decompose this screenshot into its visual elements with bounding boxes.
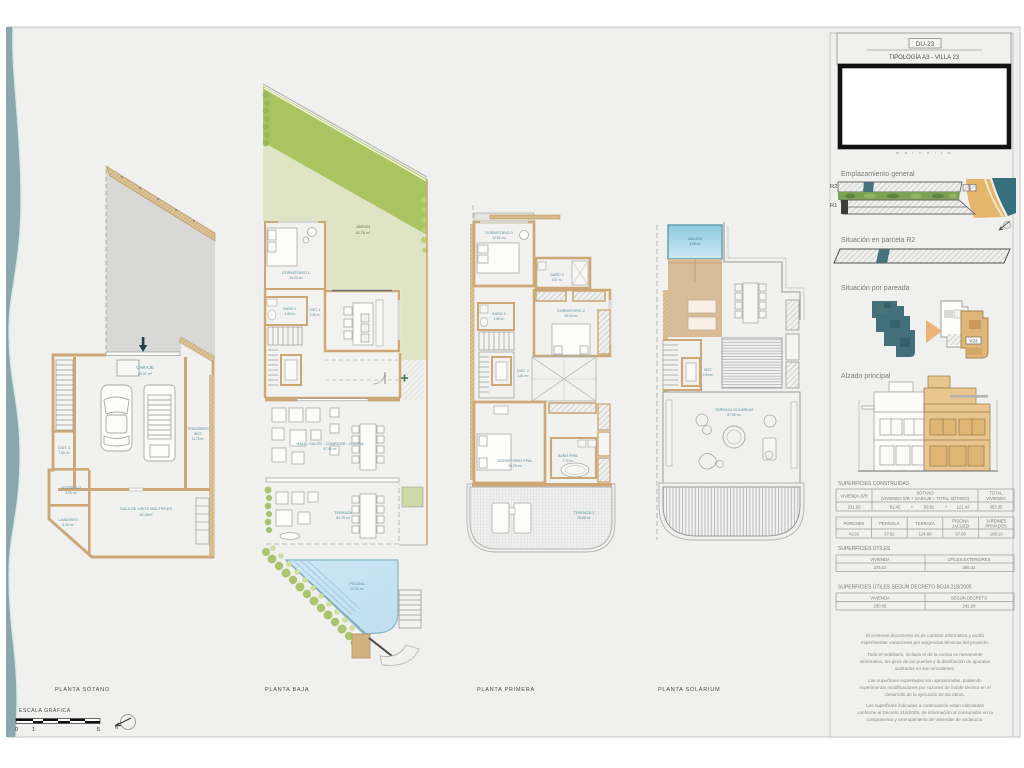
svg-text:20.05 m²: 20.05 m² bbox=[508, 464, 522, 468]
svg-text:PORCHES: PORCHES bbox=[843, 521, 864, 526]
svg-text:62.76 m²: 62.76 m² bbox=[356, 231, 371, 235]
svg-text:Alzado principal: Alzado principal bbox=[841, 373, 891, 380]
svg-text:20.30 m²: 20.30 m² bbox=[350, 587, 364, 591]
svg-text:Todo el mobiliario, incluido e: Todo el mobiliario, incluido el de la co… bbox=[867, 652, 983, 657]
svg-text:DORMITORIO PPAL: DORMITORIO PPAL bbox=[497, 459, 532, 463]
svg-text:GARAJE: GARAJE bbox=[136, 365, 154, 370]
svg-text:28.16m²: 28.16m² bbox=[139, 513, 153, 517]
svg-text:VESTÍBULO: VESTÍBULO bbox=[61, 486, 81, 490]
svg-text:informativo, los giros de las: informativo, los giros de las puertas y … bbox=[860, 659, 991, 664]
svg-text:121.42: 121.42 bbox=[957, 505, 970, 510]
svg-text:PLANTA PRIMERA: PLANTA PRIMERA bbox=[477, 687, 535, 693]
svg-text:ÚTILES EXTERIORES: ÚTILES EXTERIORES bbox=[948, 557, 991, 562]
svg-text:DORMITORIO 1: DORMITORIO 1 bbox=[282, 271, 310, 275]
svg-text:57.08: 57.08 bbox=[955, 531, 966, 536]
svg-text:conforme al Decreto 218/2005,: conforme al Decreto 218/2005, de informa… bbox=[857, 710, 993, 715]
svg-text:40.01 m²: 40.01 m² bbox=[138, 372, 153, 376]
svg-text:2.50 m²: 2.50 m² bbox=[703, 373, 714, 377]
svg-text:experimentar modificaciones po: experimentar modificaciones por razones … bbox=[859, 685, 990, 690]
svg-text:PÉRGOLA: PÉRGOLA bbox=[879, 521, 899, 526]
svg-text:BAÑO 3: BAÑO 3 bbox=[550, 272, 563, 277]
svg-text:Las superficies indicadas a co: Las superficies indicadas a continuación… bbox=[866, 703, 984, 708]
svg-text:TERRAZA: TERRAZA bbox=[334, 511, 352, 515]
svg-text:12.81 m²: 12.81 m² bbox=[492, 236, 506, 240]
svg-text:353.35: 353.35 bbox=[990, 505, 1003, 510]
svg-text:HALL - SALÓN - COMEDOR - COCIN: HALL - SALÓN - COMEDOR - COCINA bbox=[297, 441, 364, 446]
svg-text:3.95 m²: 3.95 m² bbox=[65, 491, 77, 495]
svg-text:VIVIENDA S/R: VIVIENDA S/R bbox=[840, 494, 867, 499]
svg-text:5: 5 bbox=[97, 727, 100, 733]
svg-text:61.42: 61.42 bbox=[890, 505, 901, 510]
svg-text:N: N bbox=[115, 725, 118, 730]
svg-text:m a r b e l l a: m a r b e l l a bbox=[896, 150, 952, 155]
svg-text:LAVADERO: LAVADERO bbox=[58, 518, 77, 522]
svg-text:PLANTA SOLÁRIUM: PLANTA SOLÁRIUM bbox=[658, 686, 720, 693]
svg-text:57.46 m²: 57.46 m² bbox=[323, 447, 337, 451]
svg-text:61.75 m²: 61.75 m² bbox=[336, 516, 350, 520]
svg-text:DORMITORIO 3: DORMITORIO 3 bbox=[485, 231, 513, 235]
svg-text:7.86 m²: 7.86 m² bbox=[58, 451, 70, 455]
svg-text:124.80: 124.80 bbox=[919, 531, 932, 536]
svg-text:El presente documento es de ca: El presente documento es de carácter inf… bbox=[866, 633, 984, 638]
svg-text:PISCINA: PISCINA bbox=[349, 582, 365, 586]
svg-text:SALA DE USOS MÚLTIPLES: SALA DE USOS MÚLTIPLES bbox=[120, 506, 172, 511]
svg-text:JACUZZI: JACUZZI bbox=[688, 237, 703, 241]
svg-text:VIVIENDA: VIVIENDA bbox=[870, 595, 890, 600]
svg-text:14.20 m²: 14.20 m² bbox=[289, 276, 303, 280]
svg-text:compraventa y arrendamiento d: compraventa y arrendamiento de viviendas… bbox=[867, 717, 984, 722]
svg-text:DIST. 3: DIST. 3 bbox=[58, 446, 70, 450]
svg-text:Emplazamiento general: Emplazamiento general bbox=[841, 171, 915, 178]
svg-text:TERRAZA 1: TERRAZA 1 bbox=[574, 511, 595, 515]
svg-text:DIST.: DIST. bbox=[704, 368, 712, 372]
svg-text:desarrollo de la ejecución de: desarrollo de la ejecución de las obras. bbox=[885, 692, 965, 697]
svg-text:JACUZZI: JACUZZI bbox=[952, 523, 969, 528]
svg-text:experimentar variaciones por e: experimentar variaciones por exigencias … bbox=[861, 640, 989, 645]
svg-text:DORMITORIO 2: DORMITORIO 2 bbox=[557, 309, 585, 313]
svg-text:PRIVADOS: PRIVADOS bbox=[986, 523, 1008, 528]
svg-text:TOTAL: TOTAL bbox=[989, 491, 1003, 496]
svg-text:2.40 m²: 2.40 m² bbox=[310, 313, 321, 317]
svg-text:4.08 m²: 4.08 m² bbox=[690, 242, 701, 246]
svg-text:TIPOLOGÍA A3 - VILLA 23: TIPOLOGÍA A3 - VILLA 23 bbox=[889, 54, 960, 61]
svg-text:DIST. 1: DIST. 1 bbox=[309, 308, 320, 312]
svg-text:TERRAZA: TERRAZA bbox=[915, 521, 935, 526]
svg-text:DIST. 2: DIST. 2 bbox=[517, 369, 529, 373]
svg-text:V23: V23 bbox=[969, 339, 978, 344]
svg-text:VIVIENDA: VIVIENDA bbox=[986, 496, 1006, 501]
svg-text:PLANTA BAJA: PLANTA BAJA bbox=[265, 687, 309, 693]
svg-text:R2: R2 bbox=[830, 184, 837, 190]
svg-text:87.55 m²: 87.55 m² bbox=[727, 413, 741, 417]
svg-text:242.29: 242.29 bbox=[963, 604, 976, 609]
svg-text:5.57 m²: 5.57 m² bbox=[552, 278, 563, 282]
svg-text:SEGÚN DECRETO: SEGÚN DECRETO bbox=[951, 595, 988, 600]
svg-text:41.91: 41.91 bbox=[849, 531, 860, 536]
svg-text:15.04 m²: 15.04 m² bbox=[564, 314, 578, 318]
svg-text:BAÑO 1: BAÑO 1 bbox=[283, 306, 296, 311]
svg-text:26.68 m²: 26.68 m² bbox=[577, 516, 591, 520]
svg-text:TENDEDERO: TENDEDERO bbox=[187, 427, 209, 431]
svg-text:ESCALA GRÁFICA: ESCALA GRÁFICA bbox=[19, 707, 71, 714]
svg-text:Situación en parcela R2: Situación en parcela R2 bbox=[841, 237, 915, 244]
svg-text:5.46 m²: 5.46 m² bbox=[62, 523, 74, 527]
svg-text:7.70 m²: 7.70 m² bbox=[563, 459, 574, 463]
svg-text:(VIVIENDA S/R + GARAJE + TOTAL: (VIVIENDA S/R + GARAJE + TOTAL SÓTANO) bbox=[881, 496, 970, 501]
svg-text:VIVIENDA: VIVIENDA bbox=[870, 557, 890, 562]
svg-text:SUPERFICIES CONSTRUIDAS: SUPERFICIES CONSTRUIDAS bbox=[838, 481, 910, 487]
svg-text:TERRAZA SOLÁRIUM: TERRAZA SOLÁRIUM bbox=[715, 408, 753, 412]
svg-text:SUPERFICIES ÚTILES: SUPERFICIES ÚTILES bbox=[838, 545, 891, 552]
svg-text:4.89 m²: 4.89 m² bbox=[494, 317, 505, 321]
svg-text:11.75 m²: 11.75 m² bbox=[192, 437, 204, 441]
svg-text:230.06: 230.06 bbox=[874, 604, 887, 609]
svg-text:0: 0 bbox=[15, 727, 18, 733]
svg-text:286.34: 286.34 bbox=[963, 565, 976, 570]
svg-text:108.10: 108.10 bbox=[990, 531, 1003, 536]
svg-text:4.81 m²: 4.81 m² bbox=[518, 374, 529, 378]
svg-text:37.92: 37.92 bbox=[884, 531, 895, 536]
svg-text:Situación por pareada: Situación por pareada bbox=[841, 285, 910, 292]
svg-text:INST.: INST. bbox=[194, 432, 202, 436]
svg-text:R1: R1 bbox=[830, 203, 837, 209]
svg-text:sanitarios no son vinculantes.: sanitarios no son vinculantes. bbox=[895, 666, 955, 671]
svg-text:231.93: 231.93 bbox=[848, 505, 861, 510]
svg-text:275.02: 275.02 bbox=[874, 565, 887, 570]
svg-text:SÓTANO: SÓTANO bbox=[916, 491, 934, 496]
svg-text:1: 1 bbox=[32, 727, 35, 733]
svg-text:4.86 m²: 4.86 m² bbox=[285, 312, 296, 316]
svg-text:JARDÍN: JARDÍN bbox=[356, 224, 371, 229]
svg-text:Las superficies expresadas son: Las superficies expresadas son aproximad… bbox=[868, 678, 982, 683]
svg-text:DU-23: DU-23 bbox=[916, 41, 935, 48]
svg-text:BAÑO 2: BAÑO 2 bbox=[492, 311, 505, 316]
svg-text:BAÑO PPAL: BAÑO PPAL bbox=[558, 453, 578, 458]
svg-text:SUPERFICIES ÚTILES SEGÚN DECRE: SUPERFICIES ÚTILES SEGÚN DECRETO BOJA 21… bbox=[838, 584, 972, 591]
svg-text:PLANTA SÓTANO: PLANTA SÓTANO bbox=[55, 686, 110, 693]
svg-text:59.81: 59.81 bbox=[924, 505, 935, 510]
